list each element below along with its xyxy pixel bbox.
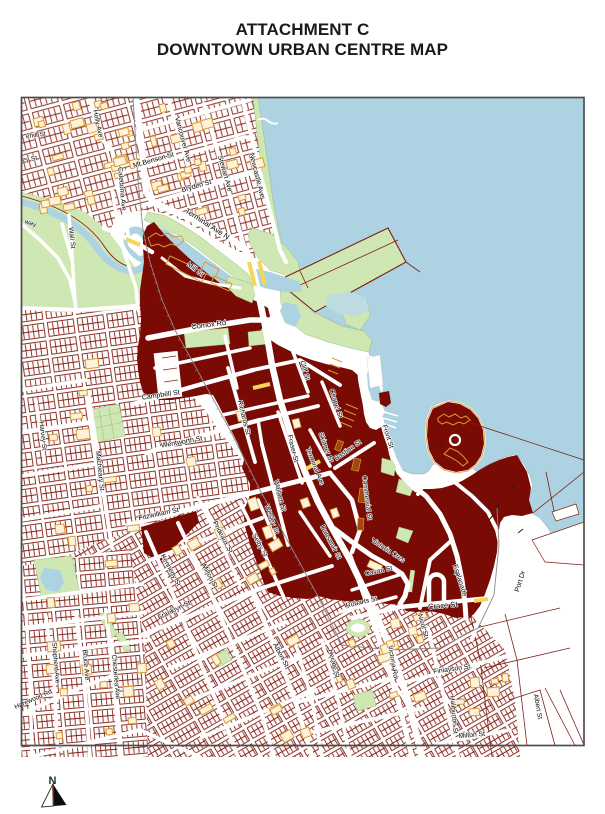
svg-text:N: N	[49, 775, 57, 787]
